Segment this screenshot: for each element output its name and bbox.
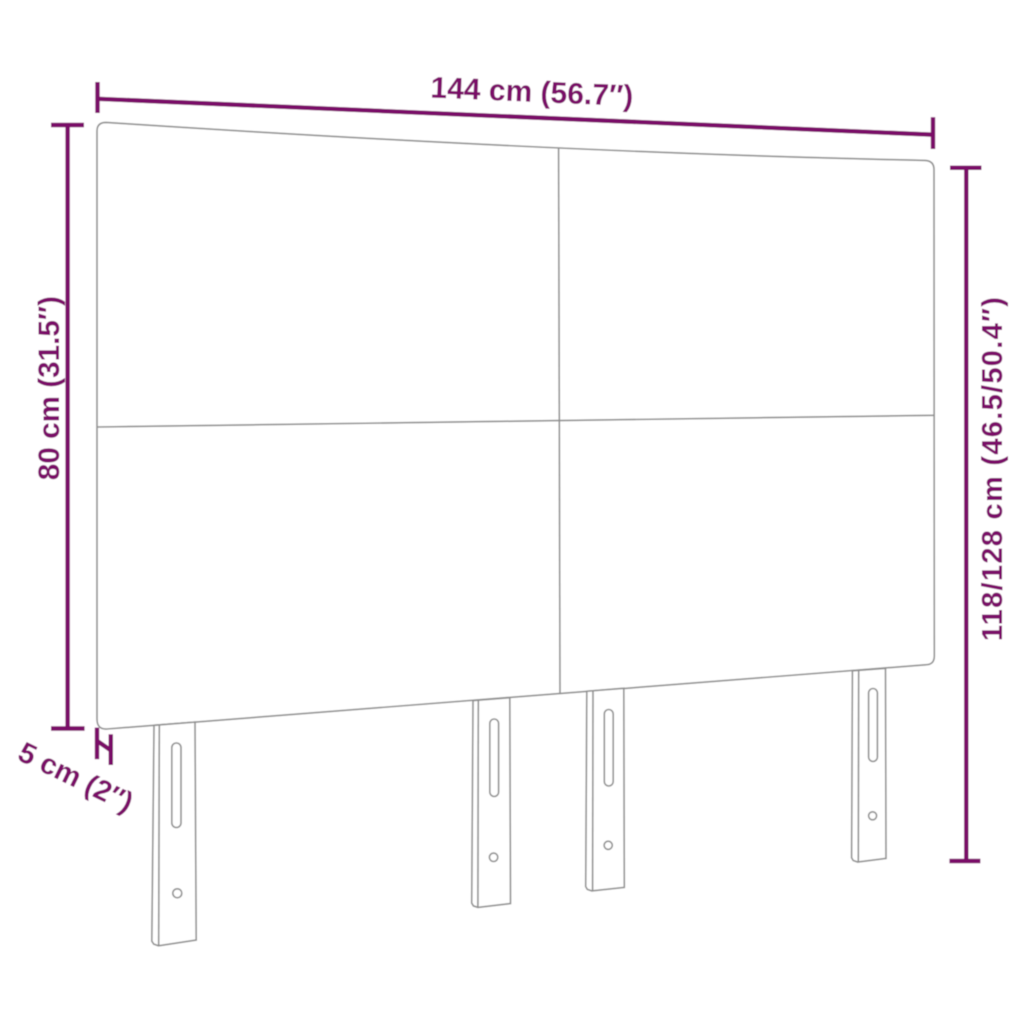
svg-text:80 cm (31.5″): 80 cm (31.5″) bbox=[33, 296, 66, 480]
svg-text:118/128 cm (46.5/50.4″): 118/128 cm (46.5/50.4″) bbox=[977, 296, 1009, 641]
